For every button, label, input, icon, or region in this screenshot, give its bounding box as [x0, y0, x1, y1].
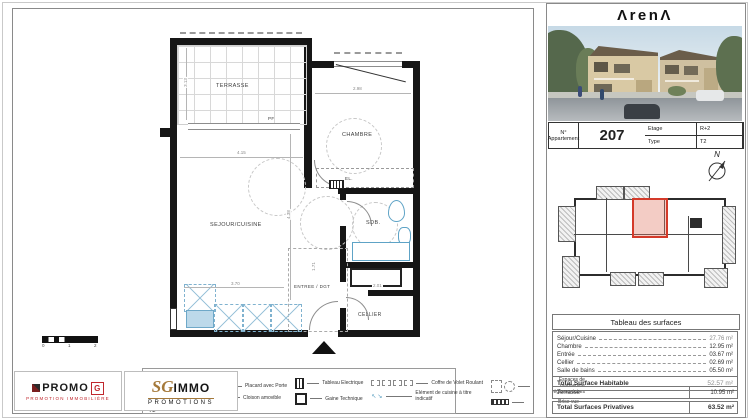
- dim-label: 2.01: [372, 283, 383, 288]
- keyplan-stair-core: [690, 218, 702, 228]
- espaces-manoeuvre-icon: [491, 380, 515, 393]
- pedestrian: [578, 86, 582, 97]
- scale-tick-1: 1: [68, 343, 71, 348]
- scale-bar: 0 1 2: [42, 336, 98, 348]
- coffre-volet-roulant-icon: [371, 380, 413, 386]
- wall-bedroom-top-left: [312, 61, 334, 68]
- pedestrian: [600, 89, 604, 100]
- keyplan-balcony: [610, 272, 636, 286]
- legend-tableau-electrique: Tableau Electrique: [295, 378, 363, 389]
- bathtub-icon: [352, 242, 410, 261]
- dim-line: [184, 287, 284, 288]
- room-label-chambre: CHAMBRE: [342, 132, 372, 138]
- surface-row: Cellier02.69 m²: [557, 358, 733, 366]
- promog-tagline: PROMOTION IMMOBILIÈRE: [26, 396, 110, 401]
- etage-label: Etage: [645, 123, 697, 136]
- scale-tick-0: 0: [42, 343, 45, 348]
- dim-label: 3.13: [183, 77, 188, 88]
- tableau-electrique-icon: [295, 378, 304, 389]
- sgimmo-sub: PROMOTIONS: [148, 398, 214, 406]
- room-label-cellier: CELLIER: [358, 312, 382, 318]
- brise-vue-icon: [491, 399, 509, 405]
- sgimmo-logo: SG IMMO PROMOTIONS: [124, 371, 238, 411]
- room-label-sejour: SEJOUR/CUISINE: [210, 222, 262, 228]
- dim-label: 4.15: [236, 150, 247, 155]
- volet-roulant-marks: [180, 32, 302, 34]
- keyplan-balcony: [596, 186, 624, 200]
- legend-gaine-technique: Gaine Technique: [295, 393, 363, 405]
- car-dark: [624, 104, 660, 119]
- surface-row: Salle de bains05.50 m²: [557, 366, 733, 374]
- surface-row: Chambre12.95 m²: [557, 342, 733, 350]
- wall-cellar-top: [368, 290, 420, 296]
- apartment-info-table: Etage R+2 N° Appartement 207 Type T2: [548, 122, 744, 149]
- room-label-sdb: SDB.: [366, 220, 380, 226]
- promog-logo-icon: [32, 384, 40, 392]
- kitchen-sink: [186, 310, 214, 328]
- dim-line: [180, 157, 303, 158]
- keyplan-balcony: [704, 268, 728, 288]
- terrace-french-door: [188, 123, 300, 130]
- room-label-entree: ENTREE / DGT: [294, 284, 330, 289]
- element-cuisine-icon: ↖↘: [371, 393, 383, 400]
- dim-label: 4.38: [286, 209, 291, 220]
- manoeuvre-circle: [300, 196, 354, 250]
- surfaces-table: Séjour/Cuisine27.76 m² Chambre12.95 m² E…: [552, 331, 738, 391]
- keyplan-balcony: [558, 206, 576, 242]
- terrasse-row: Terrasse 10.95 m²: [552, 386, 738, 399]
- dim-label: 3.70: [230, 281, 241, 286]
- dim-line: [315, 93, 411, 94]
- keyplan-balcony: [562, 256, 580, 288]
- apartment-number: 207: [579, 123, 645, 148]
- wall-terrace-top: [170, 38, 311, 45]
- wall-left-stub: [160, 128, 170, 137]
- kitchen-unit: [270, 304, 302, 332]
- legend-coffre-volet: Coffre de Volet Roulant: [371, 380, 483, 386]
- car-white: [696, 90, 724, 101]
- key-plan: [556, 160, 736, 305]
- volet-roulant-marks: [334, 52, 402, 54]
- kitchen-unit: [214, 304, 244, 332]
- apartment-number-label: N° Appartement: [549, 123, 579, 148]
- etage-value: R+2: [697, 123, 743, 136]
- kitchen-unit: [184, 284, 216, 312]
- manoeuvre-circle: [248, 158, 306, 216]
- room-label-terrasse: TERRASSE: [216, 83, 249, 89]
- kitchen-window-niche: [170, 308, 177, 330]
- surface-row: Séjour/Cuisine27.76 m²: [557, 334, 733, 342]
- legend-element-cuisine: ↖↘Elément de cuisine à titre indicatif: [371, 390, 483, 402]
- surface-row: Entrée03.67 m²: [557, 350, 733, 358]
- wall-left: [170, 38, 177, 337]
- wall-bedroom-bottom: [338, 188, 420, 194]
- surfaces-table-title: Tableau des surfaces: [552, 314, 740, 330]
- arena-brand-logo: ΛrenΛ: [548, 6, 742, 24]
- scale-tick-2: 2: [94, 343, 97, 348]
- keyplan-highlighted-unit-207: [632, 198, 668, 238]
- wall-bottom-right: [338, 330, 420, 337]
- promog-logo: PROMO G PROMOTION IMMOBILIÈRE: [14, 371, 122, 411]
- toilet-icon: [388, 200, 405, 222]
- building-render-image: [548, 26, 742, 121]
- pf-mark: PF: [268, 116, 275, 121]
- entrance-marker-icon: [312, 341, 336, 354]
- gaine-technique-icon: [295, 393, 307, 405]
- sheet: PF EL. TERRASSE CHAM: [0, 0, 750, 420]
- bush: [668, 86, 686, 96]
- total-privatives-row: Total Surfaces Privatives 63.52 m²: [552, 401, 738, 414]
- el-label: EL.: [345, 176, 353, 181]
- dim-label: 2.98: [352, 86, 363, 91]
- type-label: Type: [645, 136, 697, 149]
- keyplan-balcony: [722, 206, 736, 264]
- promog-g-badge: G: [91, 382, 104, 395]
- sgimmo-logo-icon: SG: [152, 377, 174, 397]
- kitchen-unit: [242, 304, 272, 332]
- keyplan-balcony: [638, 272, 664, 286]
- tableau-electrique-mark: [329, 180, 344, 189]
- dim-label: 1.71: [311, 261, 316, 272]
- north-label: N: [704, 150, 730, 159]
- type-value: T2: [697, 136, 743, 149]
- scale-bar-graphic: [42, 336, 98, 343]
